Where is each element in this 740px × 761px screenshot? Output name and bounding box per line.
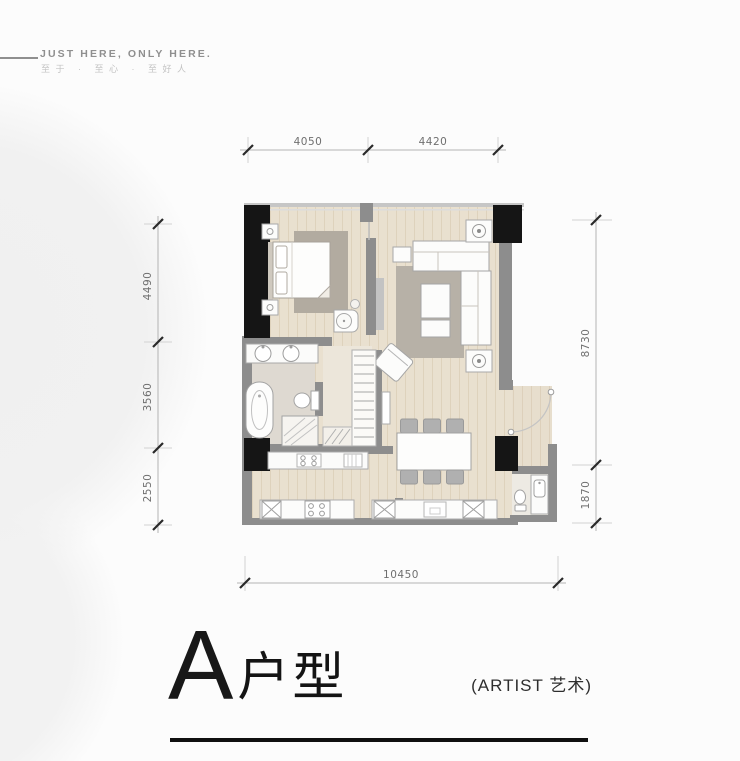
wardrobe	[352, 350, 376, 446]
column-entry	[495, 436, 518, 471]
svg-text:4420: 4420	[419, 136, 448, 148]
svg-text:4050: 4050	[294, 136, 323, 148]
svg-text:8730: 8730	[580, 329, 592, 358]
unit-letter: A	[168, 620, 233, 710]
svg-text:1870: 1870	[580, 481, 592, 510]
coffee-table	[421, 320, 450, 337]
column-southwest	[244, 438, 270, 471]
unit-suffix: 户型	[237, 652, 347, 704]
toilet	[311, 391, 319, 410]
dimension-left: 4490 3560 2550	[142, 216, 172, 533]
window-wall	[244, 203, 524, 207]
dining-table	[397, 433, 471, 470]
unit-annotation: (ARTIST 艺术)	[471, 671, 592, 696]
kitchen-sink	[424, 502, 446, 517]
svg-text:3560: 3560	[142, 383, 154, 412]
console	[382, 392, 390, 424]
sofa	[413, 241, 489, 271]
column-northeast	[493, 205, 522, 243]
svg-text:2550: 2550	[142, 474, 154, 503]
dimension-top: 4050 4420	[240, 136, 506, 163]
sofa-chaise	[461, 271, 491, 345]
chair	[424, 419, 441, 433]
title-underline	[170, 738, 588, 742]
dimension-right: 8730 1870	[572, 212, 612, 531]
dimension-bottom: 10450	[237, 556, 566, 591]
chair	[401, 419, 418, 433]
toilet	[515, 490, 526, 504]
unit-title: A 户型 (ARTIST 艺术)	[168, 620, 592, 710]
chair	[424, 470, 441, 484]
chair	[447, 419, 464, 433]
svg-text:10450: 10450	[383, 569, 419, 581]
cooktop	[297, 454, 321, 467]
tv-cabinet	[376, 278, 384, 330]
nightstand	[262, 224, 278, 239]
svg-text:4490: 4490	[142, 272, 154, 301]
side-table	[393, 247, 411, 262]
chair	[401, 470, 418, 484]
coffee-table	[421, 284, 450, 318]
dining-set	[397, 419, 471, 484]
chair	[447, 470, 464, 484]
nightstand	[262, 300, 278, 315]
